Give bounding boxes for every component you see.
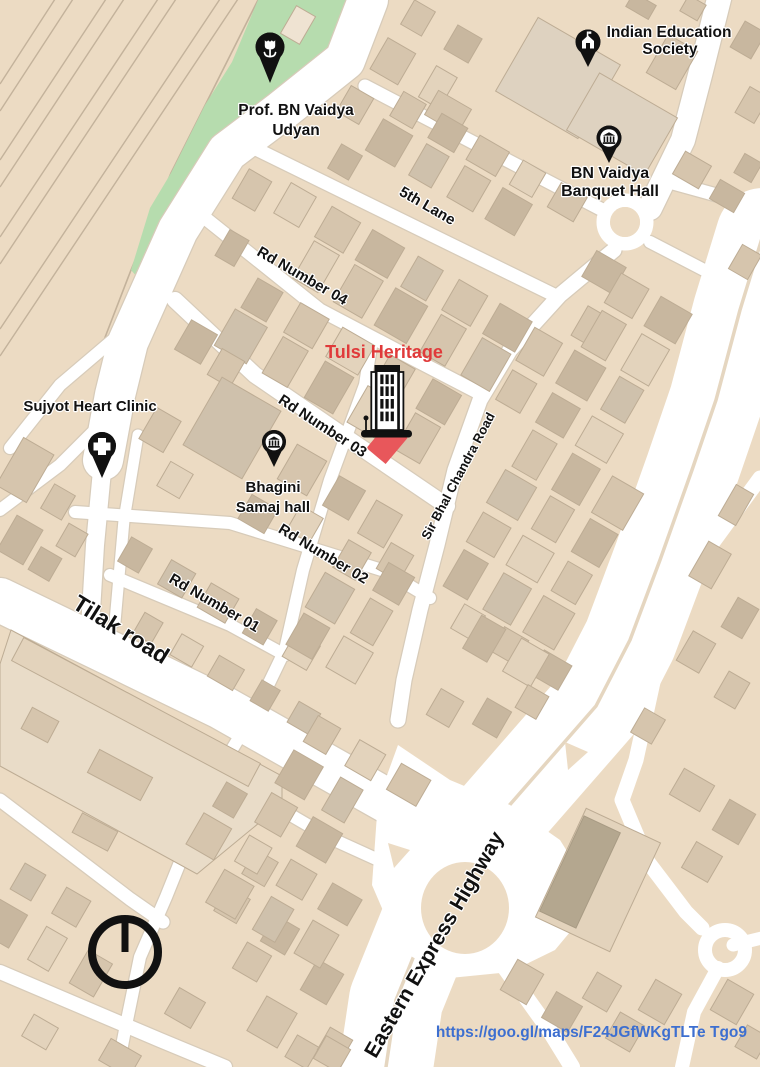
svg-text:Society: Society	[642, 41, 698, 58]
svg-text:Banquet Hall: Banquet Hall	[561, 183, 659, 200]
svg-text:Bhagini: Bhagini	[246, 479, 301, 496]
svg-text:Indian Education: Indian Education	[607, 24, 732, 41]
svg-text:Samaj hall: Samaj hall	[236, 499, 310, 516]
svg-text:BN Vaidya: BN Vaidya	[571, 165, 649, 182]
svg-text:Prof. BN Vaidya: Prof. BN Vaidya	[238, 102, 354, 119]
svg-text:Tulsi Heritage: Tulsi Heritage	[325, 342, 443, 362]
svg-text:https://goo.gl/maps/F24JGfWKgT: https://goo.gl/maps/F24JGfWKgTLTe Tgo9	[436, 1024, 748, 1041]
svg-text:Sujyot Heart Clinic: Sujyot Heart Clinic	[23, 398, 156, 415]
svg-text:Udyan: Udyan	[272, 122, 319, 139]
